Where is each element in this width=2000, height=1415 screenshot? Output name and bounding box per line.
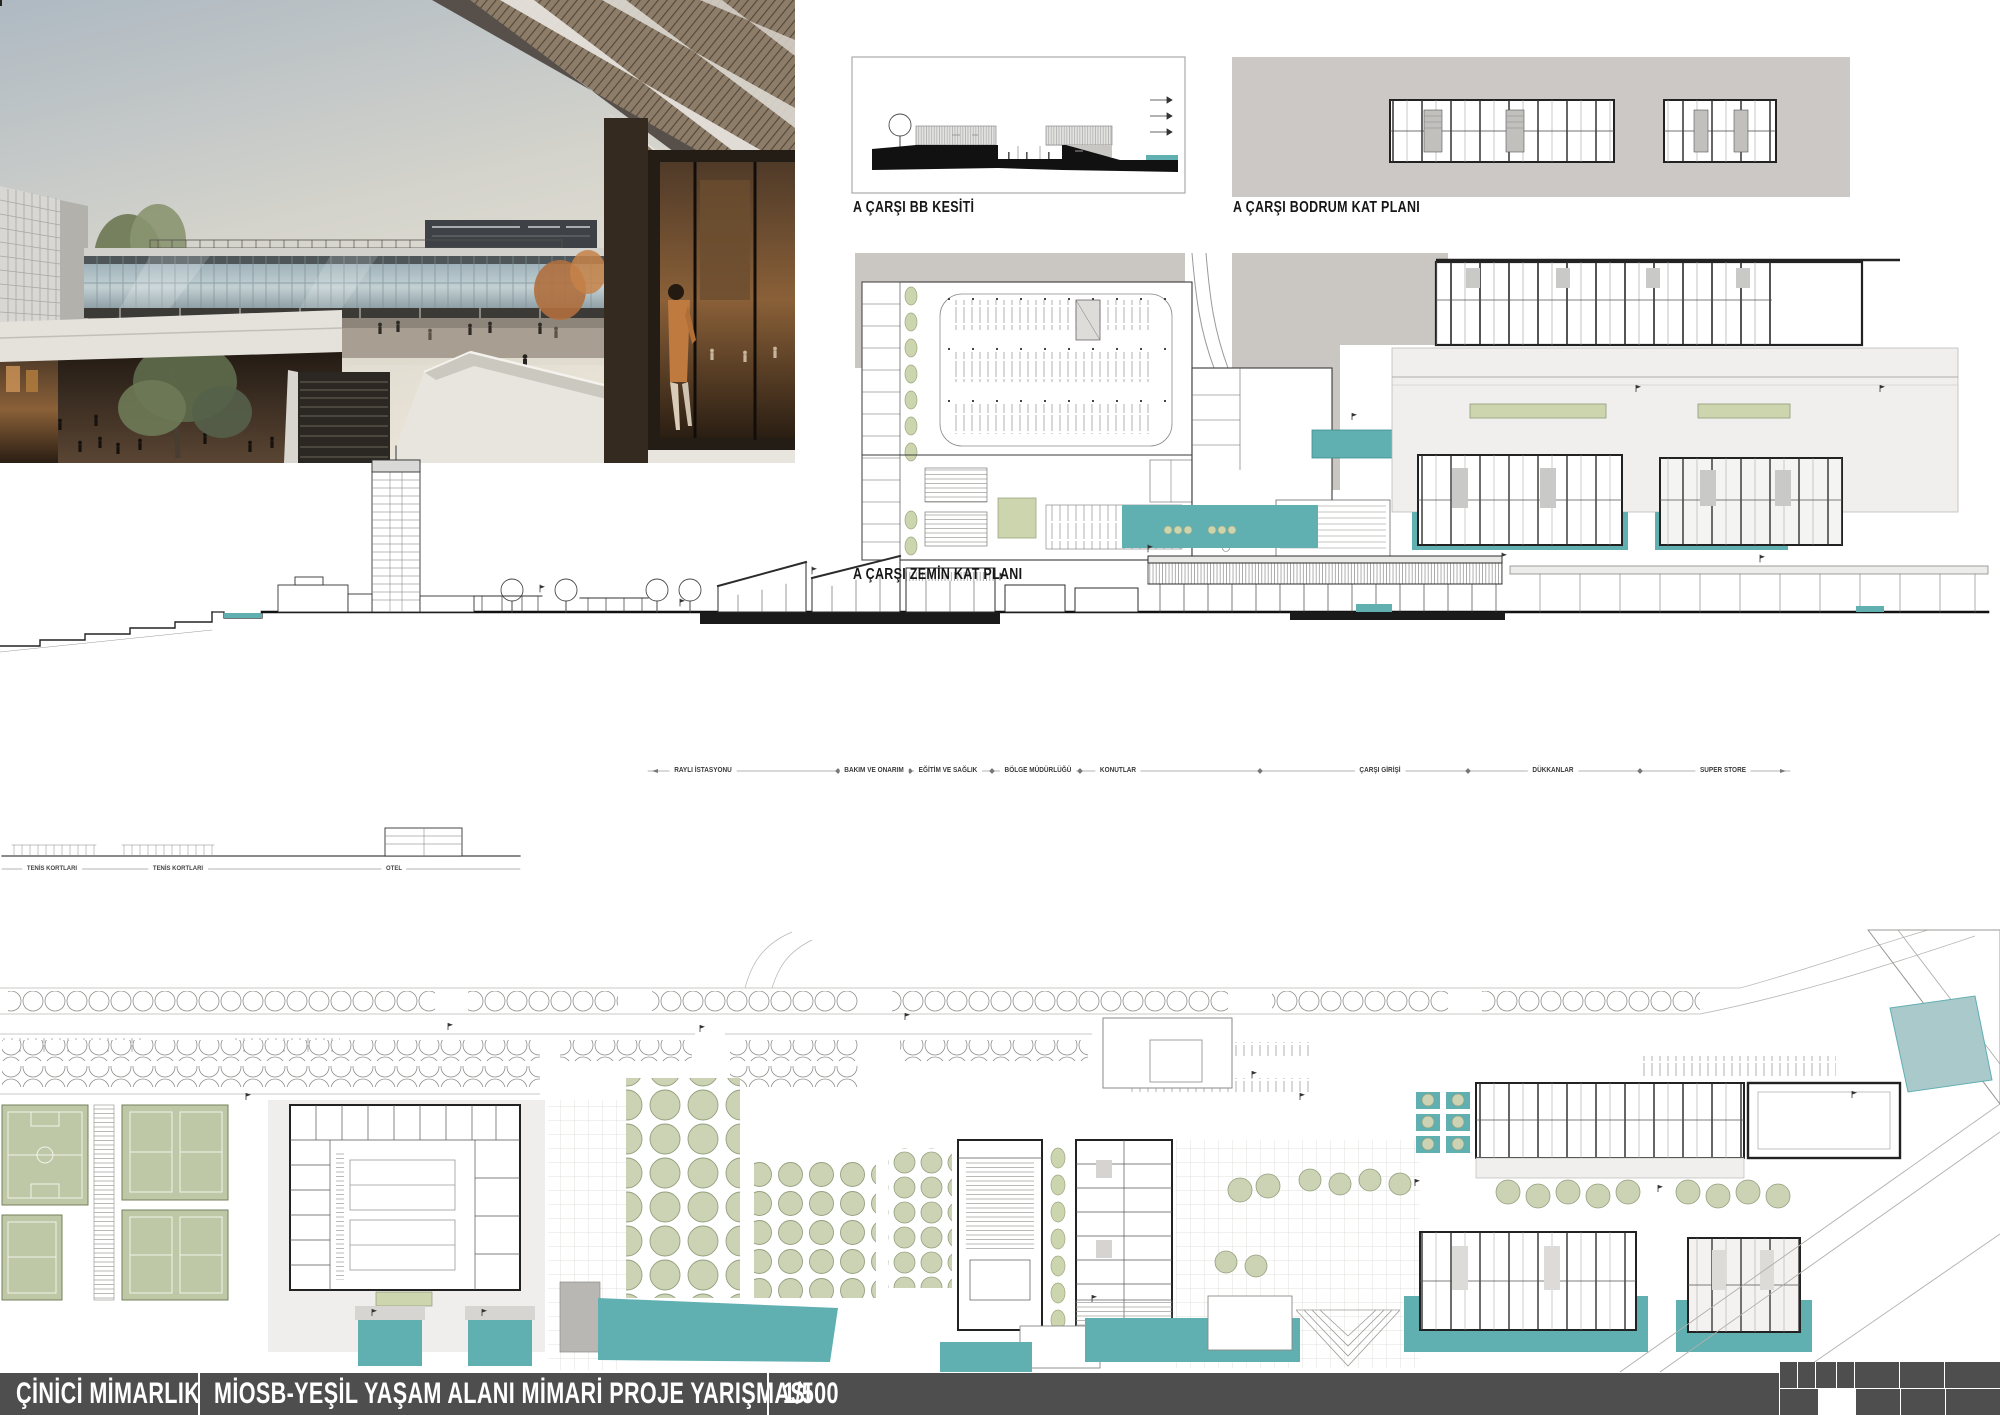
- ground-plan-drawing: [855, 253, 1958, 560]
- sheet-cell: [1900, 1362, 1944, 1388]
- label-section-bb: A ÇARŞI BB KESİTİ: [853, 199, 974, 217]
- sheet-cell: [1946, 1389, 2000, 1415]
- orchard-grid-3: [888, 1148, 952, 1288]
- sheet-cell: [1901, 1389, 1945, 1415]
- sheet-cell: [1798, 1362, 1815, 1388]
- section-label-egitim: EĞİTİM VE SAĞLIK: [914, 766, 982, 775]
- left-sub-section: [2, 828, 520, 869]
- sheet-index-grid: [1779, 1362, 2000, 1415]
- sheet-cell: [1780, 1389, 1818, 1415]
- scale-value: 1/500: [783, 1377, 839, 1411]
- sheet-cell: [1945, 1362, 2000, 1388]
- site-plan-drawing: [0, 930, 2000, 1372]
- sports-courts: [2, 1105, 228, 1300]
- sheet-cell: [1780, 1362, 1797, 1388]
- sheet-cell: [1855, 1362, 1899, 1388]
- orchard-grid-1: [626, 1078, 740, 1298]
- orchard-grid-2: [754, 1160, 876, 1298]
- render-photo: [0, 0, 803, 463]
- label-ground-plan: A ÇARŞI ZEMİN KAT PLANI: [853, 566, 1022, 584]
- canal-left: [598, 1298, 838, 1362]
- unit-row-building: [1476, 1083, 1900, 1178]
- sheet-cell: [1816, 1362, 1836, 1388]
- section-label-bolge: BÖLGE MÜDÜRLÜĞÜ: [1000, 766, 1076, 775]
- sheet-cell: [1856, 1389, 1900, 1415]
- right-band-section: [1510, 566, 1988, 612]
- label-basement-plan: A ÇARŞI BODRUM KAT PLANI: [1233, 199, 1420, 217]
- shop-window: [604, 118, 795, 463]
- section-bb-drawing: [852, 57, 1185, 193]
- teal-planter-grid: [1416, 1092, 1470, 1153]
- project-title: MİOSB-YEŞİL YAŞAM ALANI MİMARİ PROJE YAR…: [214, 1377, 811, 1411]
- section-label-carsi: ÇARŞI GİRİŞİ: [1355, 766, 1405, 775]
- sheet-cell: [1837, 1362, 1854, 1388]
- avenue: [0, 930, 1975, 1014]
- section-label-bakim: BAKIM VE ONARIM: [840, 766, 909, 775]
- sub-label-tenis-2: TENİS KORTLARI: [148, 864, 207, 873]
- sports-hall-plan: [268, 1100, 545, 1366]
- unit-cluster-right: [1676, 1238, 1812, 1352]
- long-building-section: [1148, 556, 1502, 612]
- carsi-section: [718, 556, 995, 612]
- stairs: [284, 370, 390, 463]
- unit-cluster-left: [1404, 1232, 1648, 1352]
- basement-cluster-1: [1390, 100, 1614, 162]
- section-label-istasyon: RAYLI İSTASYONU: [670, 766, 737, 775]
- section-label-konutlar: KONUTLAR: [1095, 766, 1140, 775]
- basement-plan-drawing: [1232, 57, 1850, 197]
- sub-label-otel: OTEL: [381, 864, 406, 873]
- basement-cluster-2: [1664, 100, 1776, 162]
- firm-name: ÇİNİCİ MİMARLIK: [16, 1377, 200, 1411]
- sub-label-tenis-1: TENİS KORTLARI: [22, 864, 81, 873]
- sheet-cell-active: [1819, 1389, 1855, 1415]
- title-bar: ÇİNİCİ MİMARLIK MİOSB-YEŞİL YAŞAM ALANI …: [0, 1373, 1779, 1415]
- dimension-line: [648, 768, 1790, 774]
- board-graphics: [0, 0, 2000, 1415]
- section-label-dukkanlar: DÜKKANLAR: [1528, 766, 1578, 775]
- section-label-superstore: SUPER STORE: [1695, 766, 1750, 775]
- section-tower: [278, 446, 474, 612]
- presentation-board: A ÇARŞI BB KESİTİ A ÇARŞI BODRUM KAT PLA…: [0, 0, 2000, 1415]
- teal-pool-upper-right: [1890, 996, 1992, 1092]
- station-block: [580, 598, 648, 612]
